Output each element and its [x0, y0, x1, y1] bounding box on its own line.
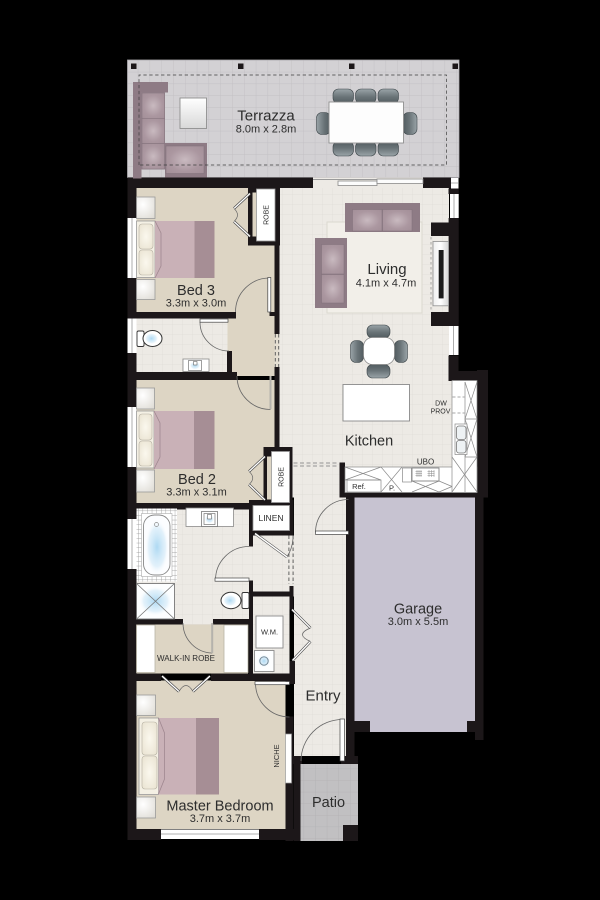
svg-text:3.3m x 3.1m: 3.3m x 3.1m: [166, 487, 227, 499]
svg-text:8.0m x 2.8m: 8.0m x 2.8m: [236, 124, 297, 136]
svg-text:ROBE: ROBE: [279, 467, 286, 487]
svg-text:W.M.: W.M.: [261, 628, 278, 637]
svg-text:WALK-IN ROBE: WALK-IN ROBE: [157, 654, 215, 663]
svg-text:Entry: Entry: [305, 688, 341, 705]
svg-text:Terrazza: Terrazza: [237, 108, 295, 125]
svg-text:UBO: UBO: [417, 458, 434, 467]
svg-text:DW: DW: [435, 401, 447, 408]
svg-text:Patio: Patio: [312, 795, 345, 811]
svg-text:Kitchen: Kitchen: [345, 434, 393, 450]
svg-text:P.: P.: [389, 484, 395, 493]
svg-text:PROV: PROV: [431, 409, 451, 416]
svg-text:Ref.: Ref.: [352, 482, 366, 491]
svg-text:NICHE: NICHE: [272, 744, 281, 767]
svg-text:3.7m x 3.7m: 3.7m x 3.7m: [190, 813, 251, 825]
svg-text:ROBE: ROBE: [264, 205, 271, 225]
svg-text:LINEN: LINEN: [258, 513, 283, 523]
svg-text:4.1m x 4.7m: 4.1m x 4.7m: [356, 278, 417, 290]
svg-text:Living: Living: [367, 261, 406, 278]
svg-text:3.0m x 5.5m: 3.0m x 5.5m: [388, 616, 449, 628]
svg-text:3.3m x 3.0m: 3.3m x 3.0m: [166, 298, 227, 310]
